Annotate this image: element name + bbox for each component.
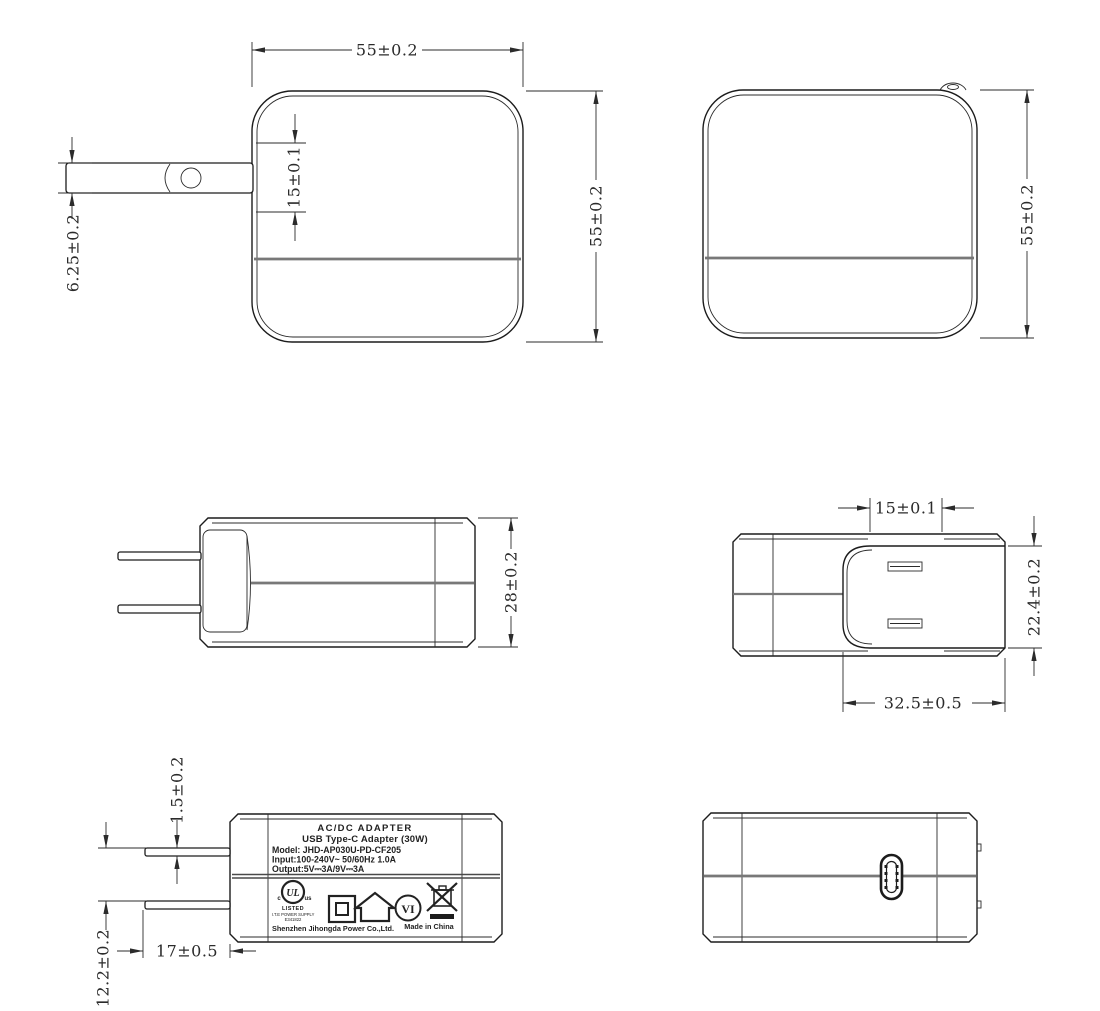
label-company: Shenzhen Jihongda Power Co.,Ltd.: [272, 924, 394, 933]
label-made-in: Made in China: [404, 922, 454, 931]
plug-pin: [66, 163, 253, 193]
mechanical-drawing-page: 55±0.2 55±0.2 15±0.1 6.25±0.2: [0, 0, 1100, 1011]
dim-pin-thickness-text: 1.5±0.2: [168, 756, 187, 824]
side-pin-lower: [118, 605, 201, 613]
label-output: Output:5V⎓3A/9V⎓3A: [272, 864, 365, 874]
usb-c-port: [881, 855, 902, 899]
ul-us-text: us: [304, 896, 312, 902]
efficiency-level-text: VI: [401, 902, 415, 916]
adapter-drawing-canvas: 55±0.2 55±0.2 15±0.1 6.25±0.2: [0, 0, 1100, 1011]
label-pin-upper: [145, 848, 230, 856]
side-pin-upper: [118, 552, 201, 560]
dim-pin-length-text: 17±0.5: [156, 942, 218, 961]
dim-front-width-text: 55±0.2: [356, 41, 418, 60]
dim-front-height-text: 55±0.2: [587, 185, 606, 247]
label-model: Model: JHD-AP030U-PD-CF205: [272, 845, 401, 855]
dim-side-height-text: 28±0.2: [502, 551, 521, 613]
dim-back-height-text: 55±0.2: [1018, 184, 1037, 246]
label-subtitle: USB Type-C Adapter (30W): [302, 834, 428, 845]
dim-pin-spacing-text: 12.2±0.2: [94, 929, 113, 1007]
ul-file-text: E341822: [285, 917, 302, 922]
dim-pin-width-text: 6.25±0.2: [64, 214, 83, 292]
dim-blade-gap-text: 15±0.1: [875, 499, 937, 518]
ul-mark-text: UL: [286, 888, 299, 899]
dim-platform-width-text: 32.5±0.5: [884, 694, 962, 713]
label-pin-lower: [145, 901, 230, 909]
dim-platform-height-text: 22.4±0.2: [1025, 558, 1044, 636]
label-input: Input:100-240V~ 50/60Hz 1.0A: [272, 855, 397, 865]
dim-plug-slot-text: 15±0.1: [285, 146, 304, 208]
label-title: AC/DC ADAPTER: [317, 823, 412, 834]
